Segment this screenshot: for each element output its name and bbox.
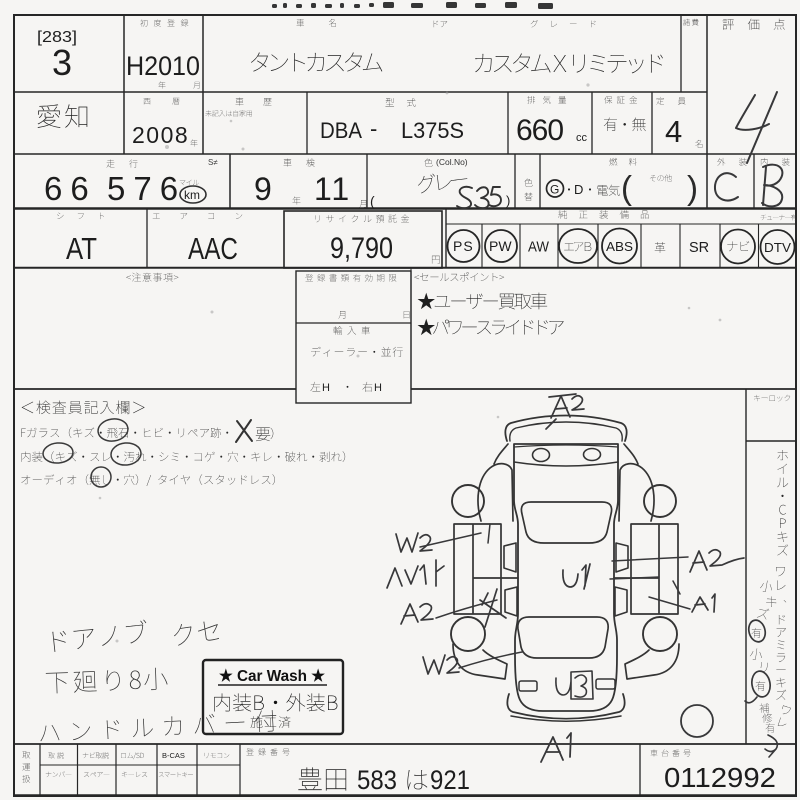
svg-text:B-CAS: B-CAS	[162, 751, 185, 760]
svg-text:(Col.No): (Col.No)	[436, 157, 468, 167]
svg-text:H: H	[322, 382, 330, 394]
svg-text:583: 583	[357, 765, 397, 795]
svg-text:0112992: 0112992	[664, 762, 776, 793]
svg-text:9,790: 9,790	[330, 232, 393, 265]
svg-text:PW: PW	[489, 238, 512, 254]
svg-text:ABS: ABS	[606, 239, 633, 254]
svg-text:): )	[687, 169, 698, 206]
svg-text:AW: AW	[528, 240, 549, 256]
svg-text:★ Car Wash ★: ★ Car Wash ★	[219, 668, 326, 685]
svg-text:SR: SR	[689, 240, 709, 256]
svg-text:(: (	[621, 169, 632, 206]
svg-text:4: 4	[665, 114, 682, 149]
svg-text:G: G	[550, 183, 559, 197]
svg-text:-: -	[370, 116, 377, 141]
svg-text:cc: cc	[576, 132, 588, 144]
svg-text:AAC: AAC	[188, 231, 238, 266]
svg-text:S≠: S≠	[208, 158, 218, 167]
svg-text:DBA: DBA	[320, 118, 362, 143]
svg-text:D: D	[574, 182, 583, 197]
svg-text:): )	[506, 193, 510, 208]
svg-text:PS: PS	[453, 238, 474, 254]
svg-text:DTV: DTV	[764, 240, 791, 255]
svg-text:921: 921	[430, 765, 470, 795]
svg-text:(: (	[370, 193, 375, 209]
svg-text:576: 576	[107, 170, 186, 207]
svg-text:2008: 2008	[132, 122, 189, 148]
svg-text:L375S: L375S	[401, 118, 464, 143]
svg-text:km: km	[184, 188, 200, 202]
svg-text:66: 66	[44, 170, 97, 207]
svg-text:H2010: H2010	[126, 51, 200, 81]
svg-text:H: H	[374, 382, 382, 394]
svg-text:11: 11	[314, 171, 351, 207]
svg-text:AT: AT	[66, 231, 97, 266]
svg-text:660: 660	[516, 114, 563, 147]
svg-text:3: 3	[52, 42, 72, 83]
svg-text:9: 9	[254, 171, 272, 207]
